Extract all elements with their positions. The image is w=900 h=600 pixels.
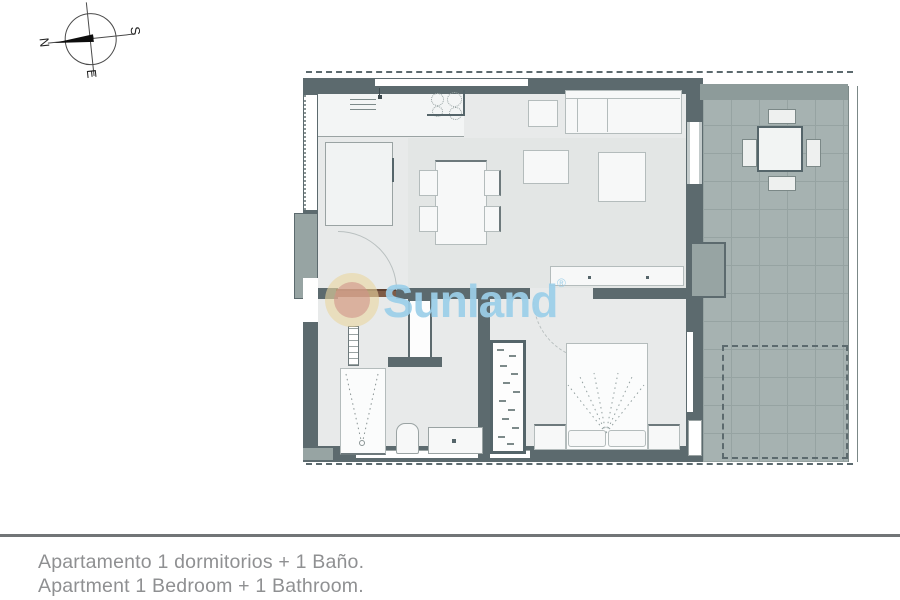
dining-chair (484, 170, 501, 196)
tv-sideboard (550, 266, 684, 286)
kitchen-island (325, 142, 393, 226)
terrace-chair (768, 176, 796, 191)
left-window (304, 95, 317, 210)
terrace-wall-top (700, 84, 848, 100)
armchair (598, 152, 646, 202)
compass-east-label: E (84, 69, 100, 79)
interior-wall-bedroom (593, 288, 686, 299)
sun-logo-inner-icon (334, 282, 370, 318)
watermark-brand: Sunland (383, 274, 557, 328)
bottom-wall-block (303, 448, 333, 460)
divider-line (0, 534, 900, 537)
compass-south-label: S (128, 26, 144, 36)
caption-line-spanish: Apartamento 1 dormitorios + 1 Baño. (38, 550, 364, 574)
terrace-chair (742, 139, 757, 167)
kitchen-counter-edge-v (463, 90, 465, 116)
kitchen-counter-edge-h (427, 114, 465, 116)
wardrobe (490, 340, 526, 454)
vanity-sink-dot (452, 439, 456, 443)
kitchen-island-handle (392, 158, 394, 182)
kitchen-faucet-line (379, 88, 380, 96)
nightstand (534, 424, 566, 450)
kitchen-sink-icon (350, 99, 376, 100)
armchair (523, 150, 569, 184)
bedroom-window (687, 332, 693, 412)
compass-rose-icon: N S E (38, 0, 146, 87)
dining-chair (484, 206, 501, 232)
caption: Apartamento 1 dormitorios + 1 Baño. Apar… (38, 550, 364, 598)
registered-mark: ® (557, 276, 566, 290)
sideboard-knob (646, 276, 649, 279)
toilet (396, 423, 419, 454)
boundary-dashed-bottom (306, 463, 853, 465)
nightstand (648, 424, 680, 450)
terrace-chair (806, 139, 821, 167)
terrace-chair (768, 109, 796, 124)
terrace-dashed-zone (722, 345, 848, 459)
bedroom-window-sill (688, 420, 702, 456)
sideboard-knob (588, 276, 591, 279)
terrace-sliding-door (687, 122, 702, 184)
shower-drain-icon (340, 368, 384, 452)
dining-chair (419, 170, 438, 196)
caption-line-english: Apartment 1 Bedroom + 1 Bathroom. (38, 574, 364, 598)
terrace-railing (848, 86, 858, 462)
dining-chair (419, 206, 438, 232)
living-closet-shelf (565, 98, 680, 99)
top-wall-window (375, 79, 528, 86)
radiator (348, 326, 359, 366)
terrace-ac-unit (690, 242, 726, 298)
side-table (528, 100, 558, 127)
kitchen-sink-line (350, 104, 376, 105)
compass-north-label: N (37, 37, 53, 48)
kitchen-sink-line (350, 109, 376, 110)
dining-table (435, 160, 487, 245)
boundary-dashed-top (306, 71, 853, 73)
living-closet (565, 90, 682, 134)
pillow (568, 430, 606, 447)
living-closet-divider (577, 98, 578, 132)
terrace-table (757, 126, 803, 172)
pillow (608, 430, 646, 447)
living-closet-divider (607, 98, 608, 132)
entry-opening (303, 278, 318, 322)
